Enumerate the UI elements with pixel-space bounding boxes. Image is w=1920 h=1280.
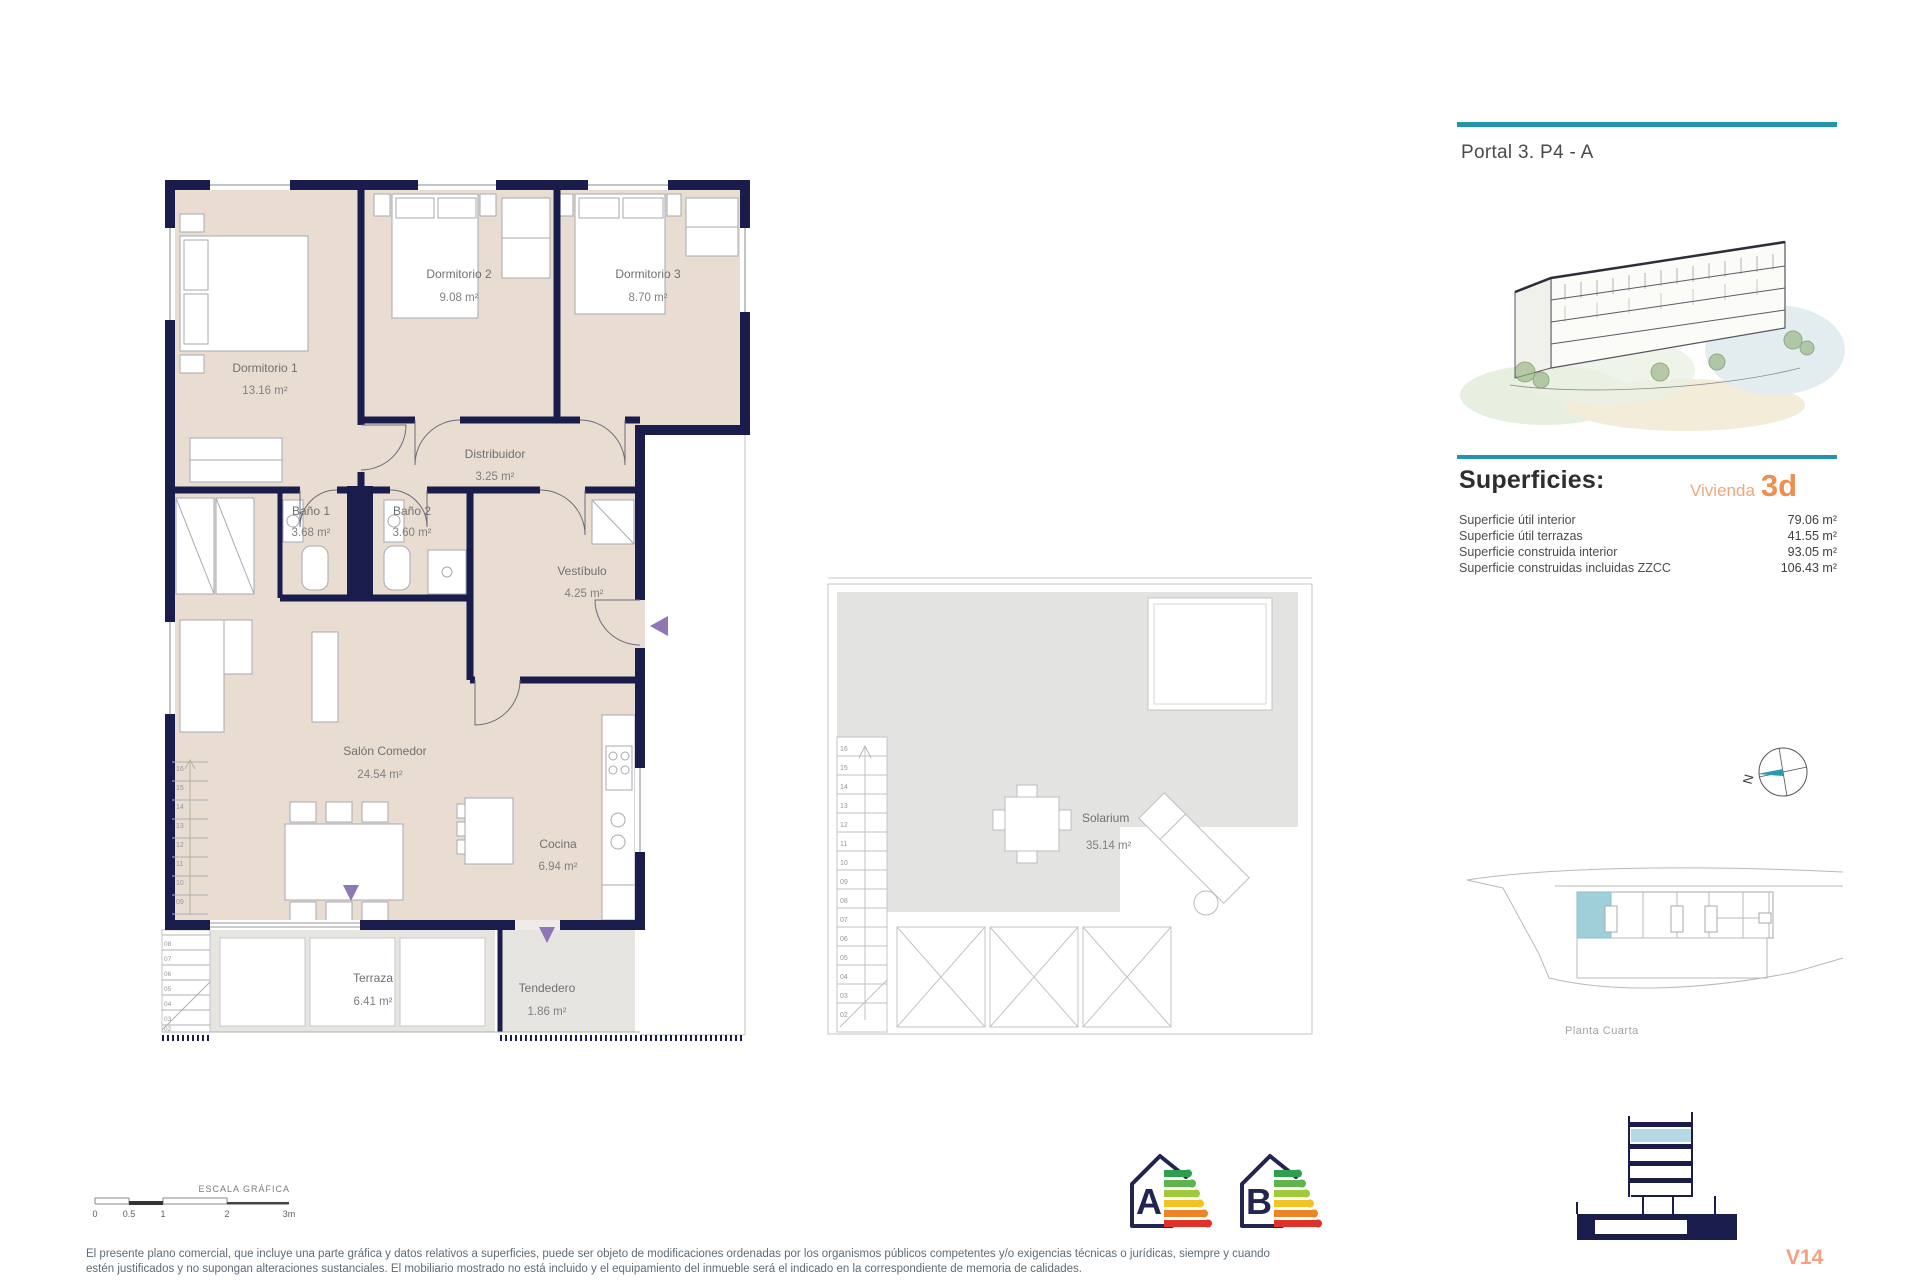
svg-text:07: 07 xyxy=(164,956,172,963)
highlighted-floor xyxy=(1631,1129,1691,1142)
room-area-dormitorio-1: 13.16 m² xyxy=(242,385,288,397)
building-sketch xyxy=(1455,200,1845,440)
superficies-row: Superficie construidas incluidas ZZCC 10… xyxy=(1459,560,1837,576)
svg-text:1: 1 xyxy=(160,1209,165,1219)
key-plan-svg: Planta Cuarta xyxy=(1465,858,1845,1058)
svg-text:16: 16 xyxy=(176,766,184,773)
svg-text:06: 06 xyxy=(164,971,172,978)
svg-text:B: B xyxy=(1246,1181,1272,1222)
svg-text:N: N xyxy=(1740,773,1757,786)
building-section-icon xyxy=(1565,1092,1755,1242)
superficies-row: Superficie construida interior 93.05 m² xyxy=(1459,544,1837,560)
room-name-bano-1: Baño 1 xyxy=(292,504,330,518)
svg-text:ESCALA GRÁFICA: ESCALA GRÁFICA xyxy=(198,1184,290,1194)
superficies-heading: Superficies: xyxy=(1459,466,1605,495)
svg-text:09: 09 xyxy=(840,879,848,886)
svg-text:04: 04 xyxy=(840,974,848,981)
room-name-tendedero: Tendedero xyxy=(519,981,576,995)
svg-text:06: 06 xyxy=(840,936,848,943)
apartment-floor-plan-svg: 16 15 14 13 12 11 10 09 08 07 06 05 04 0… xyxy=(150,170,770,1070)
superficies-row: Superficie útil interior 79.06 m² xyxy=(1459,512,1837,528)
svg-text:13: 13 xyxy=(840,803,848,810)
svg-text:11: 11 xyxy=(840,841,847,848)
svg-text:14: 14 xyxy=(176,804,184,811)
room-area-dormitorio-2: 9.08 m² xyxy=(440,292,479,304)
svg-text:08: 08 xyxy=(164,941,172,948)
svg-text:10: 10 xyxy=(176,880,184,887)
plan-version: V14 xyxy=(1786,1246,1823,1270)
svg-text:03: 03 xyxy=(840,993,848,1000)
svg-text:3m: 3m xyxy=(283,1209,296,1219)
svg-text:04: 04 xyxy=(164,1001,172,1008)
room-area-vestibulo: 4.25 m² xyxy=(565,588,604,600)
room-area-cocina: 6.94 m² xyxy=(539,861,578,873)
svg-text:09: 09 xyxy=(176,899,184,906)
room-name-terraza: Terraza xyxy=(353,971,393,985)
superficies-table: Superficie útil interior 79.06 m² Superf… xyxy=(1459,512,1837,576)
room-name-distribuidor: Distribuidor xyxy=(465,447,526,461)
svg-text:14: 14 xyxy=(840,784,848,791)
room-name-bano-2: Baño 2 xyxy=(393,504,431,518)
svg-text:03: 03 xyxy=(164,1016,172,1023)
room-name-solarium: Solarium xyxy=(1082,811,1129,825)
vivienda-label: Vivienda xyxy=(1690,481,1755,501)
pergola xyxy=(1148,598,1272,710)
svg-text:15: 15 xyxy=(176,785,184,792)
compass-icon: N xyxy=(1735,730,1835,830)
solarium-plan-svg: 16 15 14 13 12 11 10 09 08 07 06 05 04 0… xyxy=(820,572,1325,1047)
vivienda-tag: Vivienda 3d xyxy=(1690,468,1797,504)
svg-text:13: 13 xyxy=(176,823,184,830)
room-area-salon: 24.54 m² xyxy=(357,769,403,781)
room-name-dormitorio-3: Dormitorio 3 xyxy=(615,267,681,281)
page-title: Portal 3. P4 - A xyxy=(1461,142,1594,164)
svg-text:05: 05 xyxy=(840,955,848,962)
svg-text:07: 07 xyxy=(840,917,848,924)
room-area-solarium: 35.14 m² xyxy=(1086,840,1132,852)
svg-text:02: 02 xyxy=(840,1012,848,1019)
svg-text:2: 2 xyxy=(224,1209,229,1219)
svg-text:08: 08 xyxy=(840,898,848,905)
svg-text:A: A xyxy=(1136,1181,1162,1222)
room-name-cocina: Cocina xyxy=(539,837,577,851)
svg-text:0.5: 0.5 xyxy=(123,1209,136,1219)
skylight-boxes xyxy=(897,927,1171,1027)
energy-house-b: B xyxy=(1242,1156,1322,1228)
room-area-tendedero: 1.86 m² xyxy=(528,1006,567,1018)
energy-rating-icons: A B xyxy=(1120,1140,1330,1240)
legal-disclaimer: El presente plano comercial, que incluye… xyxy=(86,1247,1386,1277)
svg-text:0: 0 xyxy=(92,1209,97,1219)
svg-text:12: 12 xyxy=(176,842,184,849)
key-plan-caption: Planta Cuarta xyxy=(1565,1025,1639,1037)
energy-house-a: A xyxy=(1132,1156,1212,1228)
scale-bar: ESCALA GRÁFICA 0 0.5 1 2 3m xyxy=(78,1172,328,1222)
svg-text:10: 10 xyxy=(840,860,848,867)
vivienda-code: 3d xyxy=(1761,468,1797,504)
room-name-dormitorio-2: Dormitorio 2 xyxy=(426,267,492,281)
room-area-terraza: 6.41 m² xyxy=(354,996,393,1008)
svg-text:15: 15 xyxy=(840,765,848,772)
superficies-rule xyxy=(1457,455,1837,459)
svg-text:16: 16 xyxy=(840,746,848,753)
room-area-bano-2: 3.60 m² xyxy=(393,527,432,539)
svg-text:05: 05 xyxy=(164,986,172,993)
svg-text:12: 12 xyxy=(840,822,848,829)
room-area-bano-1: 3.68 m² xyxy=(292,527,331,539)
entry-arrow-icon xyxy=(650,616,668,636)
header-rule xyxy=(1457,122,1837,127)
solarium-stairs: 16 15 14 13 12 11 10 09 08 07 06 05 04 0… xyxy=(837,737,887,1032)
svg-text:11: 11 xyxy=(176,861,183,868)
superficies-row: Superficie útil terrazas 41.55 m² xyxy=(1459,528,1837,544)
room-area-distribuidor: 3.25 m² xyxy=(476,471,515,483)
room-name-vestibulo: Vestíbulo xyxy=(557,564,607,578)
room-area-dormitorio-3: 8.70 m² xyxy=(629,292,668,304)
room-name-dormitorio-1: Dormitorio 1 xyxy=(232,361,298,375)
room-name-salon: Salón Comedor xyxy=(343,744,426,758)
